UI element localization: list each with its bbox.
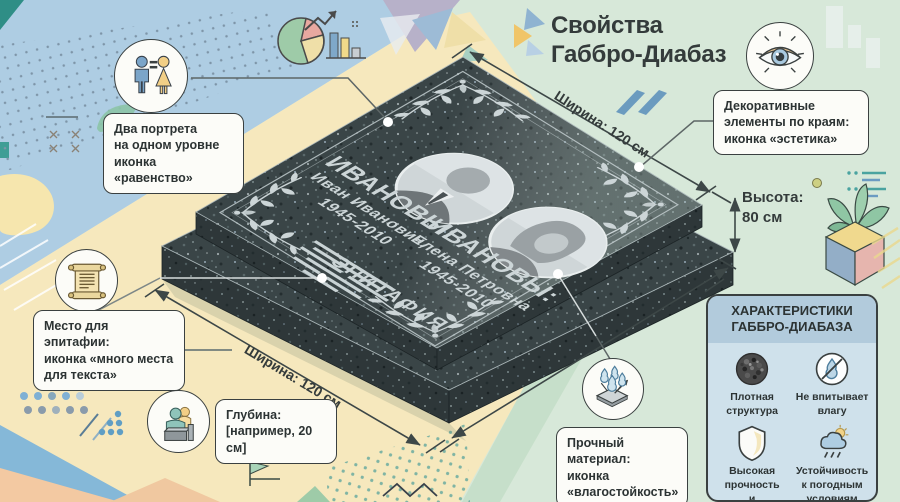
panel-item-weather: Устойчивость к погодным условиям bbox=[792, 421, 872, 502]
no-absorption-icon bbox=[812, 349, 852, 389]
decor-callout-bubble: Декоративные элементы по краям: иконка «… bbox=[713, 90, 869, 155]
portraits-callout-bubble: Два портрета на одном уровне иконка «рав… bbox=[103, 113, 244, 194]
eye-icon bbox=[751, 27, 809, 85]
material-callout-circle bbox=[582, 358, 644, 420]
man-equals-woman-icon bbox=[120, 45, 182, 107]
water-drops-icon bbox=[587, 363, 639, 415]
depth-callout-bubble: Глубина: [например, 20 см] bbox=[215, 399, 337, 464]
scroll-icon bbox=[61, 255, 113, 307]
panel-title: ХАРАКТЕРИСТИКИ ГАББРО-ДИАБАЗА bbox=[708, 296, 876, 343]
panel-item-dense-structure: Плотная структура bbox=[712, 347, 792, 421]
speaker-podium-icon bbox=[153, 396, 205, 448]
panel-item-no-absorption: Не впитывает влагу bbox=[792, 347, 872, 421]
weather-resistant-icon bbox=[812, 423, 852, 463]
panel-item-strength: Высокая прочность и долговечность bbox=[712, 421, 792, 502]
shield-icon bbox=[732, 423, 772, 463]
dense-structure-icon bbox=[732, 349, 772, 389]
characteristics-panel: ХАРАКТЕРИСТИКИ ГАББРО-ДИАБАЗА Плотная ст… bbox=[706, 294, 878, 502]
infographic-canvas: ИВАНОВЫ: Иван Иванович, 1945-2010 ИВАНОВ… bbox=[0, 0, 900, 502]
material-callout-bubble: Прочный материал: иконка «влагостойкость… bbox=[556, 427, 688, 502]
page-title: Свойства Габбро-Диабаз bbox=[551, 12, 726, 70]
depth-callout-circle bbox=[147, 390, 210, 453]
decor-callout-circle bbox=[746, 22, 814, 90]
epitaph-callout-bubble: Место для эпитафии: иконка «много места … bbox=[33, 310, 185, 391]
dimension-height-label: Высота: 80 см bbox=[742, 188, 803, 229]
portraits-callout-circle bbox=[114, 39, 188, 113]
epitaph-callout-circle bbox=[55, 249, 118, 312]
